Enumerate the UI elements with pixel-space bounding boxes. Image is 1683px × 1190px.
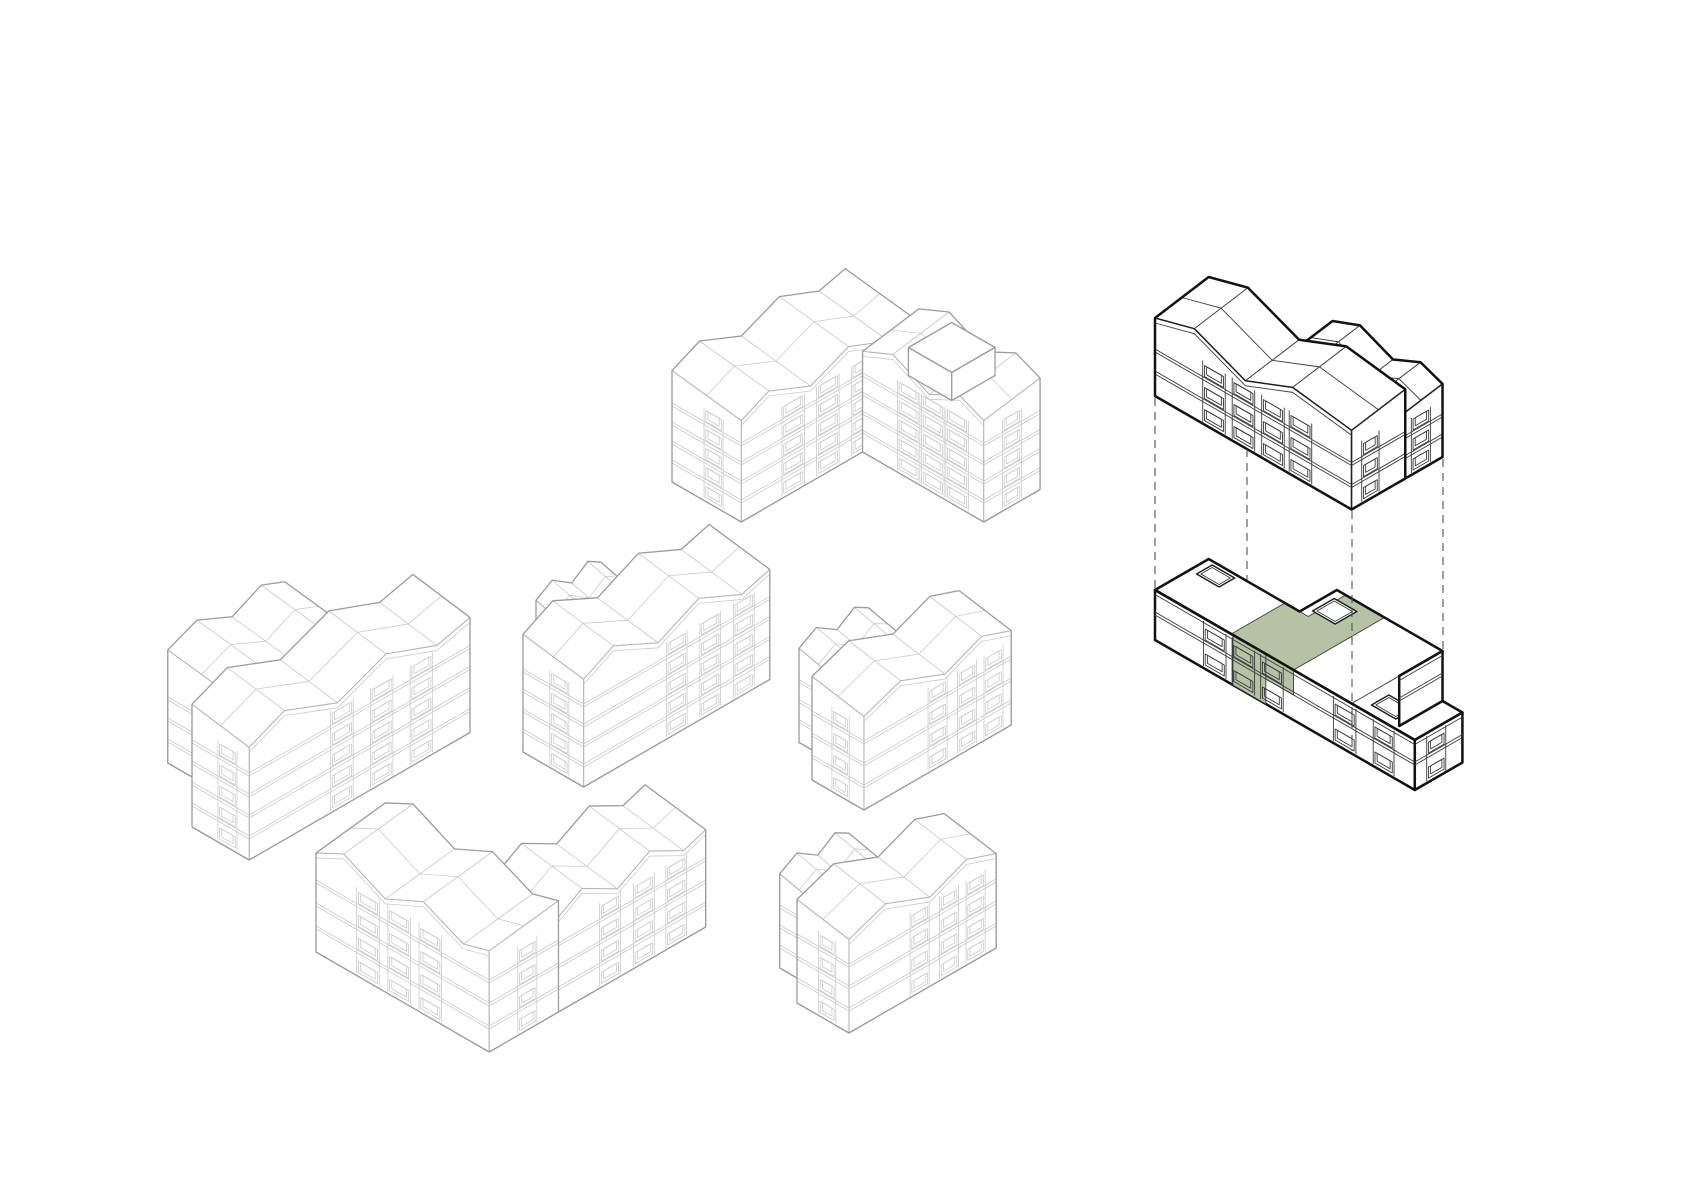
diagram-canvas [0, 0, 1683, 1190]
axonometric-diagram [0, 0, 1683, 1190]
